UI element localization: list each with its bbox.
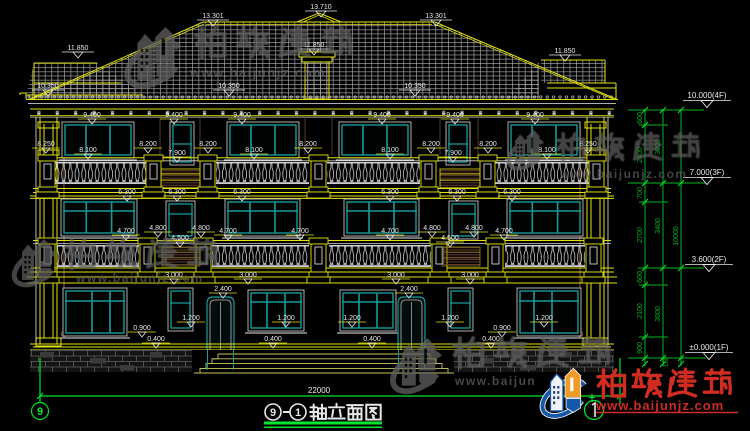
- svg-text:1: 1: [295, 407, 301, 419]
- svg-text:2100: 2100: [637, 303, 644, 319]
- svg-text:13.301: 13.301: [202, 13, 224, 20]
- svg-text:8.250: 8.250: [37, 141, 55, 148]
- svg-text:11.850: 11.850: [68, 45, 89, 52]
- svg-text:6.300: 6.300: [448, 189, 466, 196]
- svg-text:9: 9: [270, 407, 276, 419]
- svg-text:3.000: 3.000: [239, 272, 257, 279]
- svg-text:0.900: 0.900: [493, 325, 511, 332]
- svg-text:6.300: 6.300: [118, 189, 136, 196]
- svg-text:7.900: 7.900: [444, 150, 462, 157]
- svg-text:8.200: 8.200: [299, 141, 317, 148]
- svg-text:6.300: 6.300: [503, 189, 521, 196]
- svg-text:4.500: 4.500: [441, 235, 459, 242]
- svg-text:4.700: 4.700: [219, 228, 237, 235]
- svg-text:0.900: 0.900: [133, 325, 151, 332]
- svg-text:4.700: 4.700: [291, 228, 309, 235]
- svg-text:1.200: 1.200: [343, 315, 361, 322]
- svg-text:www.baijun: www.baijun: [454, 374, 536, 388]
- svg-text:3.000: 3.000: [461, 272, 479, 279]
- svg-text:www.baijunjz.com: www.baijunjz.com: [75, 271, 204, 285]
- svg-text:1.200: 1.200: [182, 315, 200, 322]
- svg-text:7.000(3F): 7.000(3F): [690, 168, 725, 177]
- svg-text:7.900: 7.900: [168, 150, 186, 157]
- svg-text:8.200: 8.200: [422, 141, 440, 148]
- svg-text:600: 600: [637, 112, 644, 124]
- svg-text:4.800: 4.800: [465, 225, 483, 232]
- svg-text:3.600(2F): 3.600(2F): [692, 255, 727, 264]
- svg-text:www.baijunjz.com: www.baijunjz.com: [559, 167, 688, 181]
- svg-text:6.300: 6.300: [233, 189, 251, 196]
- svg-text:1.200: 1.200: [441, 315, 459, 322]
- svg-text:600: 600: [637, 271, 644, 283]
- svg-text:8.200: 8.200: [139, 141, 157, 148]
- svg-text:0.400: 0.400: [363, 336, 381, 343]
- svg-text:4.700: 4.700: [381, 228, 399, 235]
- svg-text:10.350: 10.350: [218, 83, 240, 90]
- svg-text:9.400: 9.400: [446, 112, 464, 119]
- svg-text:0.400: 0.400: [147, 336, 165, 343]
- svg-text:±0.000(1F): ±0.000(1F): [689, 343, 728, 352]
- svg-text:1.200: 1.200: [535, 315, 553, 322]
- svg-text:150: 150: [664, 356, 670, 367]
- svg-text:3400: 3400: [655, 218, 662, 234]
- svg-text:1.200: 1.200: [277, 315, 295, 322]
- svg-text:13.710: 13.710: [310, 4, 332, 11]
- svg-text:10.350: 10.350: [404, 83, 426, 90]
- svg-text:10.000(4F): 10.000(4F): [687, 91, 726, 100]
- svg-text:8.200: 8.200: [479, 141, 497, 148]
- svg-text:4.800: 4.800: [192, 225, 210, 232]
- svg-text:8.100: 8.100: [538, 147, 556, 154]
- svg-text:6.300: 6.300: [381, 189, 399, 196]
- svg-text:8.100: 8.100: [79, 147, 97, 154]
- svg-text:www.baijunjz.com: www.baijunjz.com: [595, 398, 724, 413]
- svg-text:2.400: 2.400: [214, 286, 232, 293]
- svg-text:4.800: 4.800: [423, 225, 441, 232]
- svg-text:9.400: 9.400: [165, 112, 183, 119]
- svg-text:9: 9: [37, 406, 43, 418]
- svg-text:2.400: 2.400: [400, 286, 418, 293]
- svg-text:0.400: 0.400: [264, 336, 282, 343]
- svg-text:2700: 2700: [637, 227, 644, 243]
- svg-text:13.301: 13.301: [425, 13, 447, 20]
- svg-text:11.850: 11.850: [555, 48, 576, 55]
- svg-text:6.300: 6.300: [168, 189, 186, 196]
- svg-text:3.000: 3.000: [387, 272, 405, 279]
- svg-text:9.400: 9.400: [373, 112, 391, 119]
- svg-text:22000: 22000: [308, 386, 331, 395]
- svg-text:8.100: 8.100: [245, 147, 263, 154]
- svg-text:www.baijunjz.com: www.baijunjz.com: [189, 65, 326, 80]
- svg-text:3600: 3600: [655, 306, 662, 322]
- svg-text:9.400: 9.400: [83, 112, 101, 119]
- svg-text:9.400: 9.400: [233, 112, 251, 119]
- svg-text:8.100: 8.100: [381, 147, 399, 154]
- svg-text:4.800: 4.800: [149, 225, 167, 232]
- svg-text:4.700: 4.700: [495, 228, 513, 235]
- svg-text:8.200: 8.200: [199, 141, 217, 148]
- svg-text:4.700: 4.700: [117, 228, 135, 235]
- svg-text:10.350: 10.350: [37, 83, 59, 90]
- svg-text:9.400: 9.400: [526, 112, 544, 119]
- svg-text:900: 900: [637, 342, 644, 354]
- svg-text:10000: 10000: [673, 226, 680, 246]
- svg-text:700: 700: [637, 187, 644, 199]
